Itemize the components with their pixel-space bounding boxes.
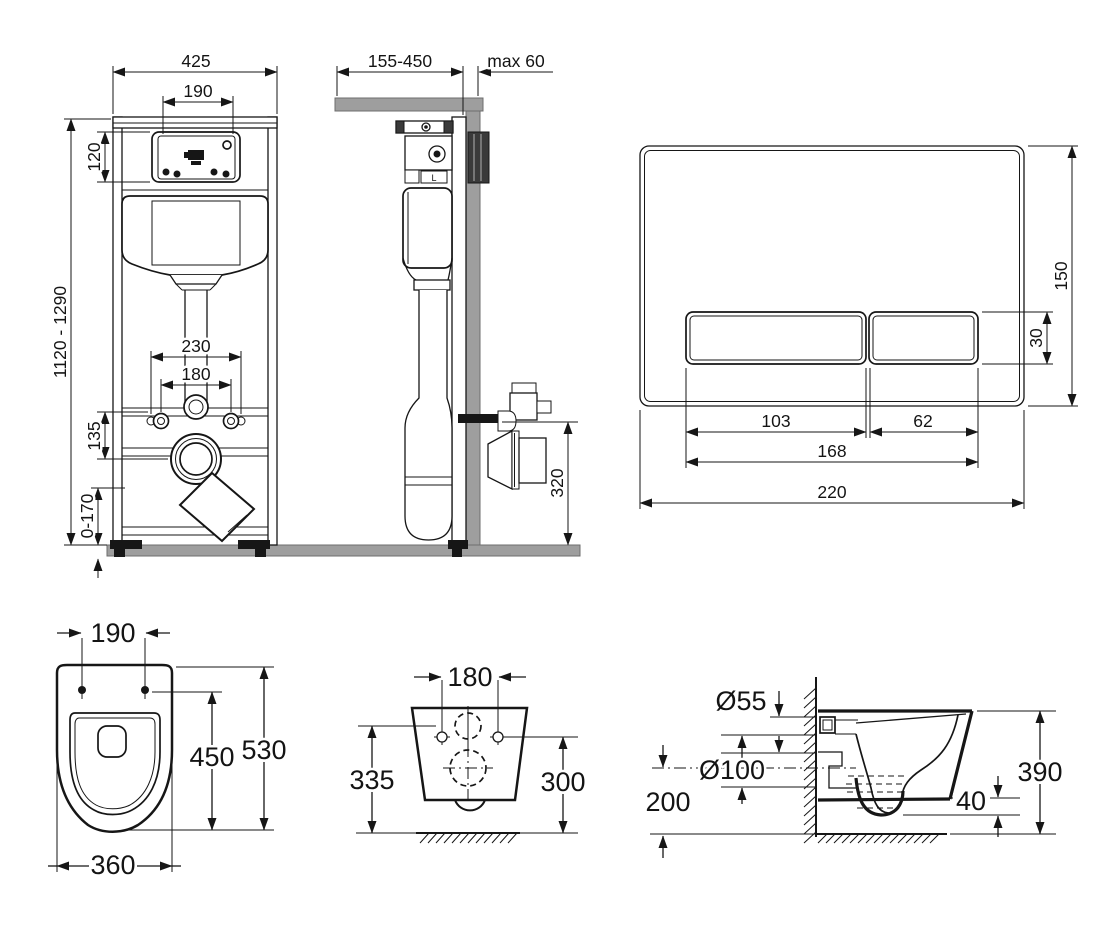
dim-label-outlet-height: 200 [645,787,690,817]
dim-label-plate-width: 220 [817,482,846,502]
flush-pipe-side [405,290,452,540]
bowl-rear-view: 180 335 300 [348,662,587,843]
bowl-outline-rear [412,708,527,800]
dim-label-frame-width: 425 [181,51,210,71]
floor-section [650,834,1056,843]
dim-label-rear-right-height: 300 [540,767,585,797]
drain-outlet-connector [488,431,546,489]
dim-label-buttons-width: 168 [817,441,846,461]
dim-label-small-button-width: 62 [913,411,932,431]
filling-valve-icon [188,150,204,160]
dim-label-bowl-height: 390 [1017,757,1062,787]
bowl-top-view: 190 450 530 360 [48,618,288,880]
dim-label-button-height: 30 [1026,328,1046,348]
bowl-section-outline [818,711,972,800]
service-opening-box [152,132,240,182]
floor-slab [107,545,580,556]
bowl-side-view: Ø55 Ø100 200 40 390 [645,677,1065,858]
dim-inlet-diameter: Ø55 [715,686,817,759]
dim-label-foot-adjustment: 0-170 [77,493,97,538]
dim-buttons-width: 168 [686,441,978,462]
dim-plate-width: 220 [640,482,1024,503]
drain-socket [171,434,254,541]
dim-label-finish-max: max 60 [487,51,545,71]
dim-undercut: 40 [903,776,1020,837]
dim-outlet-diameter: Ø100 [699,736,817,804]
cistern-mechanism-side: L [405,136,452,183]
dim-label-supply-height: 320 [547,468,567,497]
frame-rail-side [452,117,466,545]
dim-label-bowl-depth: 530 [241,735,286,765]
wall-anchor-plate [468,132,489,183]
part-marking: L [431,173,436,183]
frame-right-rail [268,117,277,545]
shelf-surface [335,98,483,111]
concealed-cistern [122,196,268,290]
dim-label-holes-to-front: 450 [189,742,234,772]
dim-label-plate-height: 150 [1051,261,1071,290]
dim-label-rear-left-height: 335 [349,765,394,795]
dim-label-outlet-offset: 135 [84,421,104,450]
dim-bowl-height: 390 [977,711,1065,834]
dim-label-frame-height-range: 1120 - 1290 [50,286,70,378]
dim-plate-height: 150 [1028,146,1078,406]
bowl-rear-bump [455,800,485,810]
dim-label-depth-range: 155-450 [368,51,432,71]
cistern-tank-side [403,188,452,290]
dim-label-outer-fixing-spacing: 230 [181,336,210,356]
dim-label-bolt-spacing: 180 [181,364,210,384]
ground-line-rear [356,833,578,843]
frame-side-view: L [335,51,578,557]
dim-label-opening-height: 120 [84,142,104,171]
flush-button-small [869,312,978,364]
frame-left-rail [113,117,122,545]
page: { "document": { "background": "#ffffff",… [0,0,1120,930]
dim-small-button-width: 62 [870,411,978,432]
flush-plate [640,146,1024,406]
technical-drawing-canvas: 425 190 120 1120 - 1290 230 [0,0,1120,930]
inlet-connector-side [820,717,858,734]
dim-outlet-height: 200 [645,745,690,858]
water-supply-port [184,395,208,419]
wall-bracket-top [396,121,453,133]
dim-label-inlet-diameter: Ø55 [715,686,766,716]
dim-finish-max: max 60 [478,51,553,96]
wall-section [804,677,816,843]
dim-frame-height-range: 1120 - 1290 [50,119,111,545]
dim-label-bowl-width: 360 [90,850,135,880]
dim-label-hole-spacing-rear: 180 [447,662,492,692]
dim-label-undercut: 40 [956,786,986,816]
flush-plate-view: 150 30 103 62 168 220 [640,146,1078,509]
dim-large-button-width: 103 [686,411,866,432]
dim-label-opening-width: 190 [183,81,212,101]
flush-button-large [686,312,866,364]
dim-label-large-button-width: 103 [761,411,790,431]
frame-front-view: 425 190 120 1120 - 1290 230 [50,51,277,578]
dim-label-outlet-diameter: Ø100 [699,755,765,785]
dim-label-hole-spacing-top: 190 [90,618,135,648]
